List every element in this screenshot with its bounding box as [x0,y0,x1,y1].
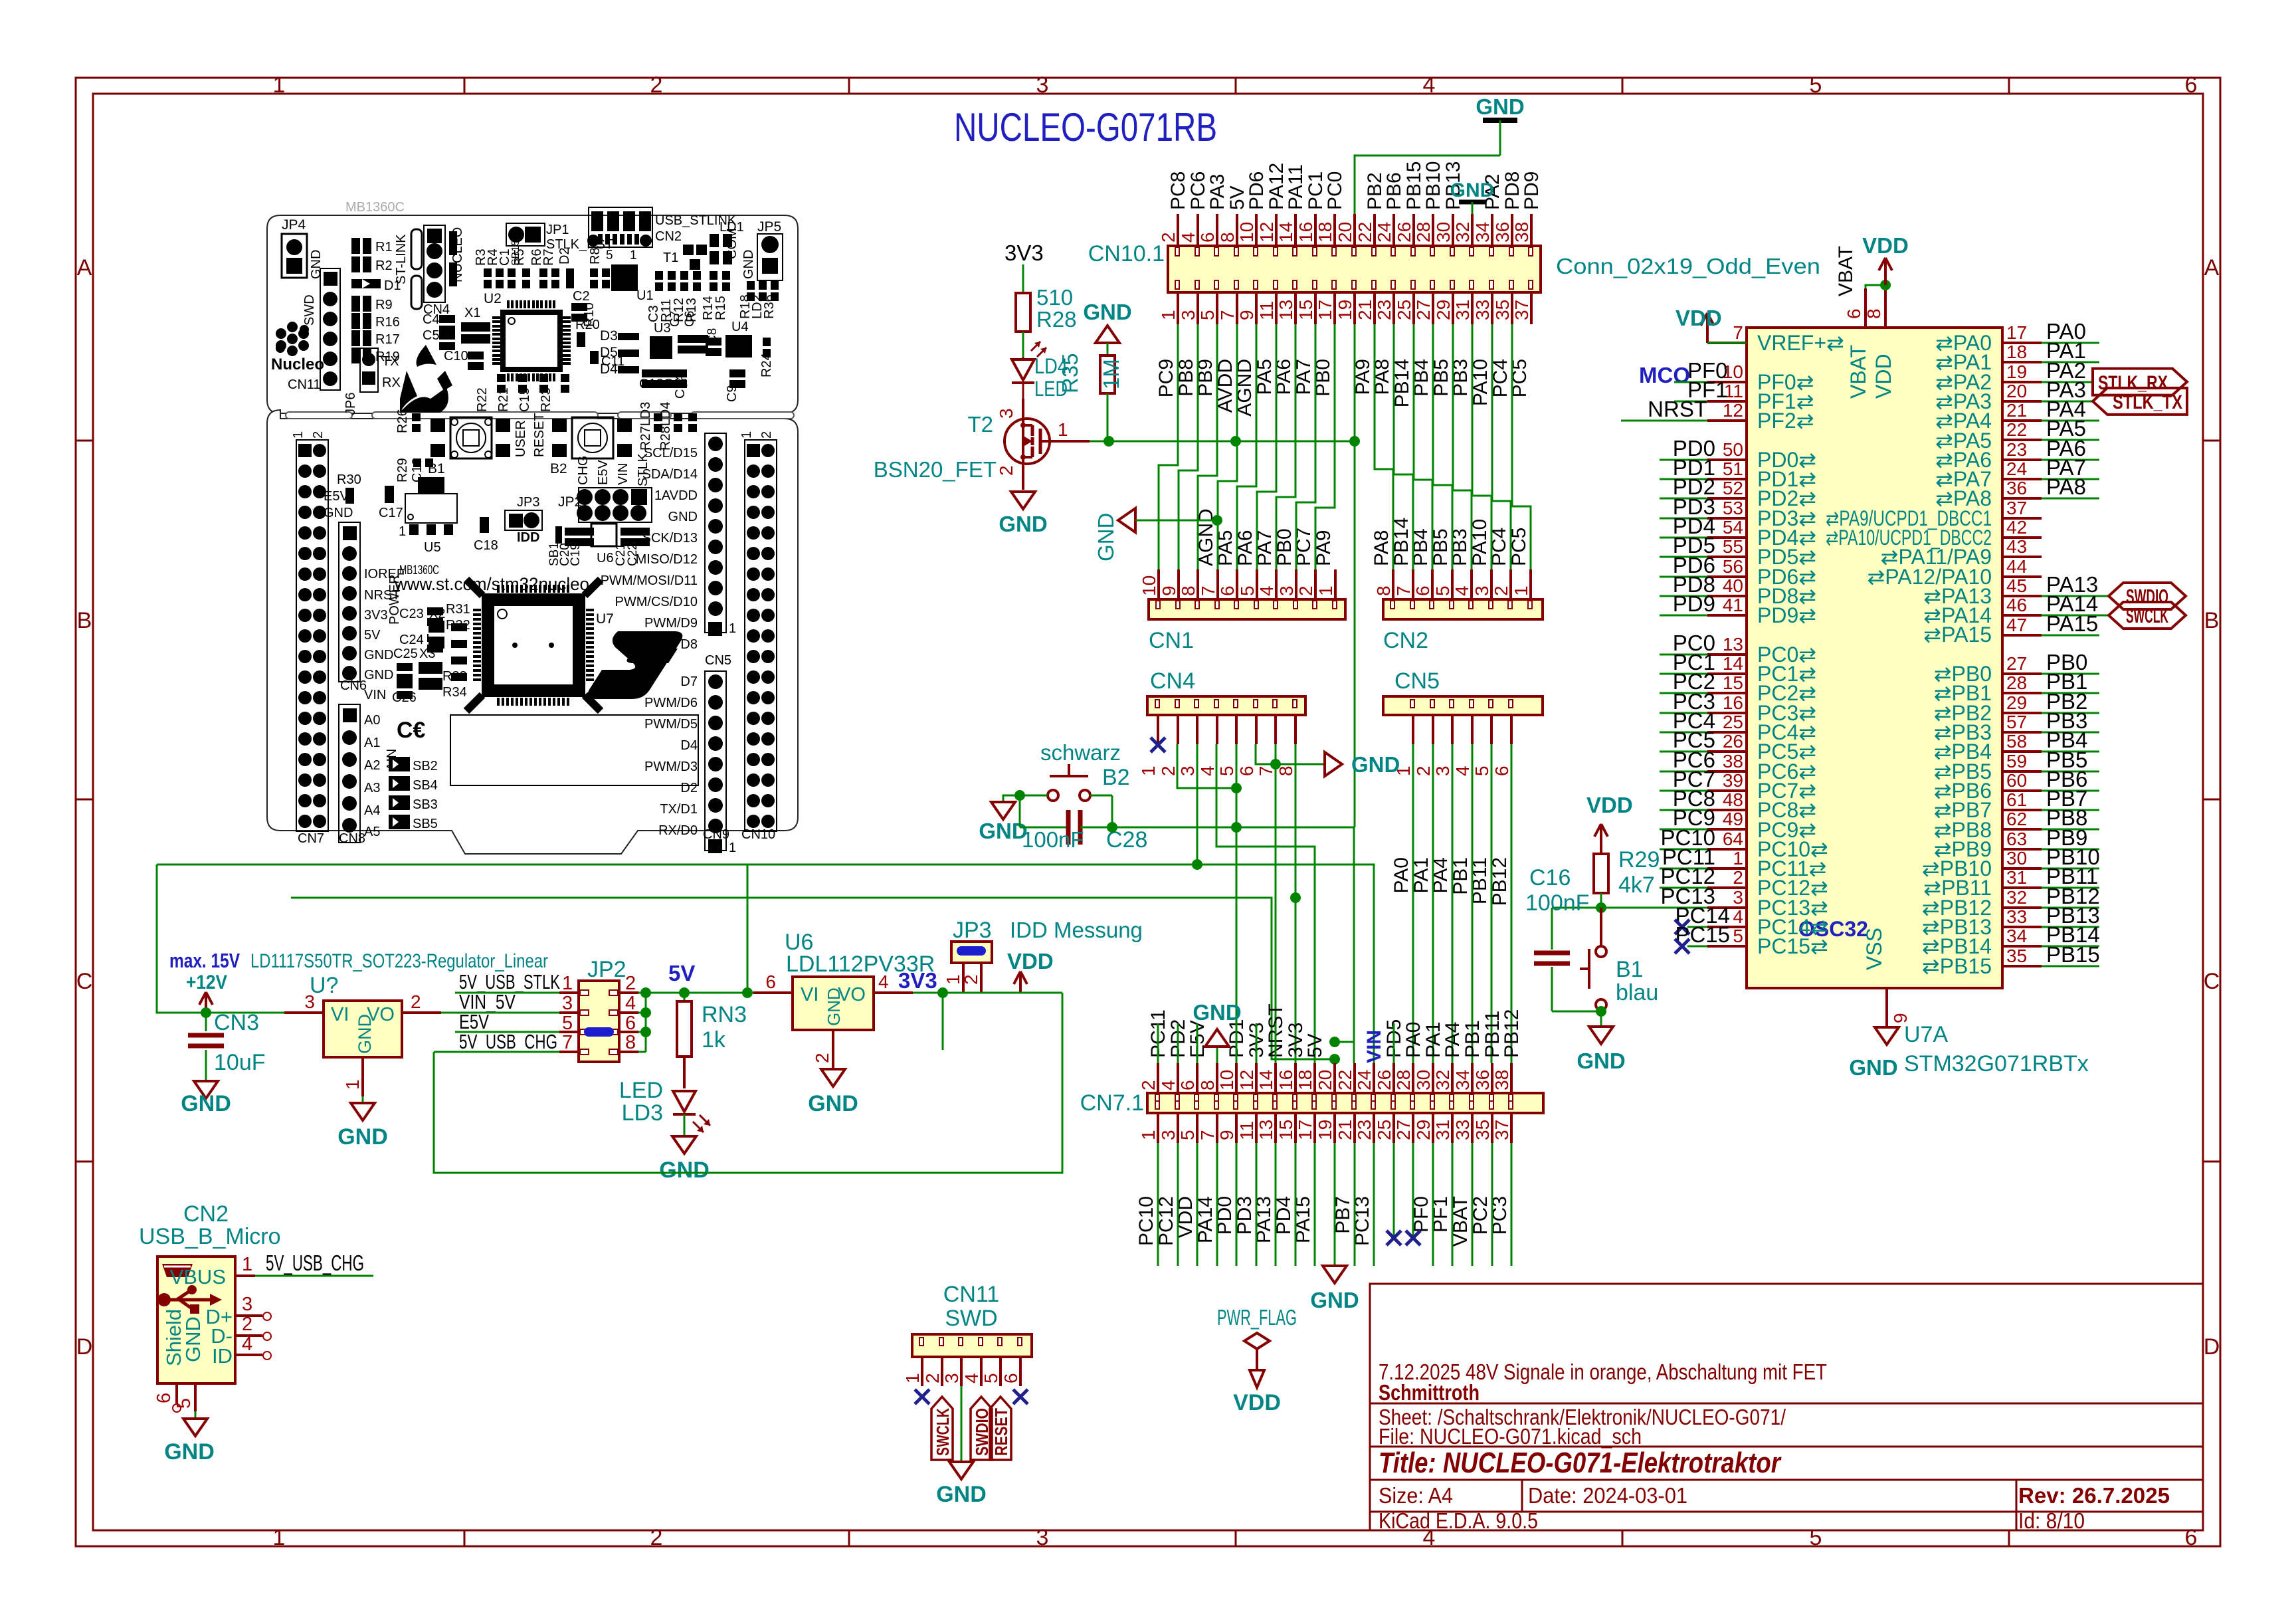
svg-text:20: 20 [1335,222,1355,243]
svg-text:6: 6 [1412,585,1433,596]
svg-text:8: 8 [1197,1080,1218,1090]
svg-text:JP4: JP4 [282,217,306,233]
svg-text:VBAT: VBAT [1835,246,1857,296]
svg-text:CN10: CN10 [741,827,775,842]
svg-text:A3: A3 [364,781,380,795]
svg-text:4: 4 [1452,585,1472,596]
svg-text:2: 2 [922,1373,943,1383]
svg-text:+12V: +12V [186,971,227,993]
svg-text:3: 3 [304,991,315,1012]
svg-text:RESET: RESET [991,1408,1011,1456]
svg-text:PF2⇄: PF2⇄ [1757,409,1814,433]
svg-text:29: 29 [1413,1120,1434,1140]
svg-text:C: C [2204,969,2220,994]
svg-text:12: 12 [1723,400,1743,421]
svg-text:6: 6 [1844,308,1864,319]
svg-text:X3: X3 [419,647,435,661]
svg-text:12: 12 [1236,1070,1257,1090]
svg-text:4: 4 [242,1334,252,1355]
svg-text:3V3: 3V3 [898,968,937,993]
svg-text:48: 48 [1723,789,1743,810]
svg-text:40: 40 [1723,575,1743,596]
svg-text:510: 510 [1036,285,1073,310]
svg-text:R27LD3: R27LD3 [638,402,653,451]
svg-text:3: 3 [1036,1525,1049,1550]
svg-text:COM: COM [725,228,739,259]
svg-text:53: 53 [1723,498,1743,518]
svg-text:R1: R1 [375,240,393,254]
svg-text:32: 32 [1452,222,1473,243]
svg-text:SB3: SB3 [413,797,438,812]
svg-text:6: 6 [1491,765,1512,776]
svg-text:11: 11 [1256,301,1277,320]
svg-text:PA0: PA0 [1390,857,1412,893]
svg-text:SWD: SWD [302,294,317,326]
svg-text:STLK_TX: STLK_TX [2113,391,2182,413]
svg-text:2: 2 [650,72,663,98]
svg-text:35: 35 [1492,300,1513,320]
svg-text:GND: GND [999,512,1047,536]
svg-text:4: 4 [1452,765,1473,776]
svg-text:SB15: SB15 [510,240,522,266]
svg-text:28: 28 [1413,222,1434,243]
svg-text:C26: C26 [392,690,417,705]
svg-text:Date: 2024-03-01: Date: 2024-03-01 [1528,1483,1687,1508]
svg-text:R29: R29 [395,458,410,482]
svg-text:U5: U5 [424,540,441,555]
svg-text:43: 43 [2006,536,2027,557]
svg-text:GND: GND [1083,300,1131,324]
svg-text:27: 27 [1413,300,1434,320]
svg-text:35: 35 [1472,1120,1493,1140]
svg-text:1: 1 [1315,585,1336,596]
svg-text:3: 3 [1178,310,1198,320]
svg-text:7: 7 [1217,310,1238,320]
svg-text:62: 62 [2006,809,2027,829]
svg-text:9: 9 [1236,310,1257,320]
svg-text:JP2: JP2 [587,957,626,982]
svg-text:Nucleo: Nucleo [271,355,324,373]
svg-text:VDD: VDD [1586,793,1633,817]
svg-text:16: 16 [1723,692,1743,713]
svg-text:GND: GND [741,250,756,279]
svg-text:U6: U6 [597,551,614,565]
svg-text:A1: A1 [364,736,380,750]
svg-text:BSN20_FET: BSN20_FET [874,457,997,482]
svg-text:2: 2 [812,1053,832,1063]
svg-text:CN1: CN1 [1149,628,1194,653]
svg-text:26: 26 [1723,731,1743,752]
svg-text:STLK_RST: STLK_RST [546,237,613,252]
svg-text:D: D [76,1334,93,1360]
svg-text:25: 25 [1374,1120,1394,1140]
svg-text:5V: 5V [668,961,695,985]
svg-text:LED: LED [619,1078,663,1103]
svg-text:21: 21 [1335,1120,1355,1140]
svg-text:35: 35 [2006,946,2027,966]
svg-text:SWCLK: SWCLK [933,1408,953,1456]
svg-text:PWM/MOSI/D11: PWM/MOSI/D11 [601,573,698,588]
svg-text:58: 58 [2006,731,2027,752]
svg-text:Schmittroth: Schmittroth [1379,1380,1480,1405]
svg-text:E5V: E5V [324,489,349,504]
svg-text:3V3: 3V3 [1004,241,1044,265]
svg-text:6: 6 [1001,1373,1021,1383]
svg-text:R31: R31 [446,602,470,617]
svg-text:5V_USB_CHG: 5V_USB_CHG [459,1030,557,1053]
svg-text:PC15⇄: PC15⇄ [1757,934,1828,958]
svg-text:A4: A4 [364,803,380,818]
svg-text:R34: R34 [442,685,467,700]
svg-text:max. 15V: max. 15V [169,949,240,972]
svg-text:GND: GND [364,648,393,662]
svg-text:24: 24 [1354,1070,1375,1090]
svg-text:2: 2 [1138,1080,1159,1090]
svg-text:1: 1 [739,431,754,439]
svg-text:GND: GND [936,1482,987,1507]
svg-text:9: 9 [1890,1013,1911,1023]
svg-text:R30: R30 [337,472,361,487]
svg-text:19: 19 [1335,300,1355,320]
svg-text:R15: R15 [714,296,728,320]
svg-text:8: 8 [625,1032,636,1053]
svg-text:SWD: SWD [945,1306,997,1331]
svg-text:18: 18 [1295,1070,1315,1090]
svg-text:R33: R33 [442,669,467,684]
svg-text:17: 17 [2006,322,2027,343]
svg-text:PB15: PB15 [2046,942,2100,967]
svg-text:USB_B_Micro: USB_B_Micro [139,1224,281,1249]
svg-text:PC8: PC8 [1167,171,1189,210]
svg-text:GND: GND [1450,179,1495,201]
svg-text:GND: GND [337,1124,388,1150]
svg-text:5: 5 [981,1373,1001,1383]
svg-text:1: 1 [242,1254,252,1275]
svg-text:blau: blau [1616,980,1658,1005]
svg-text:57: 57 [2006,712,2027,732]
svg-text:5: 5 [1197,310,1218,320]
svg-text:32: 32 [1432,1070,1453,1090]
svg-text:28: 28 [2006,672,2027,693]
svg-text:59: 59 [2006,751,2027,771]
svg-text:GND: GND [1577,1049,1625,1073]
svg-text:PWM/D5: PWM/D5 [644,717,698,732]
svg-text:JP1: JP1 [546,223,569,237]
svg-text:3: 3 [1177,765,1198,776]
svg-text:GND: GND [1193,1000,1241,1025]
svg-text:2: 2 [1413,765,1434,776]
svg-text:C5: C5 [423,328,440,343]
svg-text:D4: D4 [680,738,698,753]
svg-text:56: 56 [1723,556,1743,577]
svg-text:C23: C23 [399,607,424,621]
svg-text:R26: R26 [395,409,410,433]
svg-text:15: 15 [1295,300,1316,320]
svg-text:GND: GND [659,1158,710,1183]
svg-text:36: 36 [1472,1070,1493,1090]
svg-text:63: 63 [2006,829,2027,849]
svg-text:1: 1 [399,524,406,539]
svg-text:50: 50 [1723,439,1743,460]
svg-text:Title: NUCLEO-G071-Elektrotrak: Title: NUCLEO-G071-Elektrotraktor [1379,1447,1782,1479]
svg-text:C4: C4 [423,312,440,327]
svg-text:1: 1 [273,72,286,98]
svg-text:4: 4 [1178,232,1198,243]
svg-text:STM32G071RBTx: STM32G071RBTx [1904,1051,2089,1076]
svg-text:CN4: CN4 [1150,668,1195,694]
svg-text:AVDD: AVDD [662,488,698,503]
svg-text:38: 38 [1491,1070,1512,1090]
svg-text:3: 3 [1472,585,1492,596]
svg-text:T1: T1 [663,251,678,265]
svg-text:SB5: SB5 [413,817,438,831]
svg-text:PA0: PA0 [1402,1022,1424,1058]
svg-text:4: 4 [1256,585,1277,596]
svg-text:File: NUCLEO-G071.kicad_sch: File: NUCLEO-G071.kicad_sch [1379,1424,1642,1449]
svg-text:7: 7 [562,1032,573,1053]
svg-text:17: 17 [1315,300,1335,320]
svg-text:MCO: MCO [1639,363,1690,387]
svg-text:PWM/D3: PWM/D3 [644,760,698,774]
svg-text:1: 1 [729,621,736,636]
svg-text:37: 37 [1511,300,1532,320]
svg-text:2: 2 [1733,867,1743,888]
svg-text:CN6: CN6 [340,678,367,693]
svg-text:X2: X2 [429,607,445,621]
svg-text:RX: RX [382,375,401,390]
svg-text:2: 2 [311,431,326,439]
svg-text:B2: B2 [1102,765,1130,790]
svg-text:6: 6 [625,1013,636,1034]
svg-text:PA3: PA3 [1206,174,1228,210]
svg-text:13: 13 [1276,300,1296,320]
svg-text:37: 37 [1491,1120,1512,1140]
svg-text:4: 4 [1158,1080,1179,1090]
svg-text:C24: C24 [399,633,424,647]
svg-text:B1: B1 [1616,957,1644,982]
svg-text:TX/D1: TX/D1 [660,802,698,817]
svg-text:PWR_FLAG: PWR_FLAG [1217,1305,1297,1330]
svg-text:Id: 8/10: Id: 8/10 [2018,1508,2085,1533]
svg-text:C9: C9 [725,385,739,402]
svg-text:27: 27 [2006,653,2027,674]
svg-text:R29: R29 [1618,847,1660,872]
svg-text:GND: GND [1476,94,1524,119]
svg-text:34: 34 [1472,222,1493,243]
svg-text:24: 24 [2006,458,2027,479]
svg-text:1: 1 [1511,585,1531,596]
svg-text:5: 5 [1216,765,1237,776]
svg-text:VDD: VDD [1675,306,1722,330]
svg-text:28: 28 [1393,1070,1414,1090]
svg-text:7: 7 [1198,585,1218,596]
svg-text:RESET: RESET [532,413,547,457]
svg-text:TX: TX [382,354,399,369]
svg-text:20: 20 [1315,1070,1335,1090]
svg-text:5: 5 [1733,926,1743,946]
svg-text:NRST: NRST [1648,397,1707,421]
svg-text:PA15: PA15 [2046,611,2098,636]
svg-text:PWM/D9: PWM/D9 [644,616,698,631]
svg-text:5V: 5V [1304,1033,1326,1058]
svg-text:4: 4 [961,1373,982,1383]
svg-text:29: 29 [2006,692,2027,713]
svg-text:SDA/D14: SDA/D14 [642,467,698,482]
svg-text:4: 4 [878,971,889,992]
svg-text:6: 6 [2185,72,2198,98]
svg-text:31: 31 [1432,1120,1453,1140]
svg-text:2: 2 [1491,585,1511,596]
svg-text:GND: GND [824,987,844,1026]
svg-text:1: 1 [729,841,736,855]
svg-text:5V_USB_CHG: 5V_USB_CHG [266,1251,364,1275]
svg-text:GND: GND [364,668,393,682]
svg-text:MB1360C: MB1360C [345,200,405,215]
svg-text:C€: C€ [397,718,426,743]
svg-text:Conn_02x19_Odd_Even: Conn_02x19_Odd_Even [1556,254,1820,278]
svg-text:6: 6 [1217,585,1238,596]
svg-text:PD9⇄: PD9⇄ [1757,603,1816,627]
svg-text:GND: GND [1351,752,1400,777]
svg-text:D3: D3 [600,328,618,344]
svg-text:14: 14 [1723,653,1743,674]
svg-text:VIN: VIN [1363,1030,1385,1063]
svg-text:21: 21 [2006,400,2027,421]
svg-text:2: 2 [411,991,421,1012]
svg-text:46: 46 [2006,595,2027,615]
svg-text:1M: 1M [1099,359,1123,389]
svg-text:VDD: VDD [1233,1390,1281,1415]
svg-text:R22: R22 [475,387,490,412]
svg-text:3: 3 [996,408,1016,419]
svg-text:CN2: CN2 [655,229,682,244]
svg-text:19: 19 [1315,1120,1335,1140]
svg-text:1: 1 [562,973,573,994]
svg-text:VSS: VSS [1862,928,1886,970]
svg-text:39: 39 [1723,770,1743,791]
svg-text:B: B [77,608,92,633]
svg-text:R35: R35 [1058,353,1082,393]
svg-text:3: 3 [1036,72,1049,98]
svg-text:1: 1 [902,1373,923,1383]
svg-text:R20: R20 [575,318,600,332]
svg-text:PD6: PD6 [1246,171,1268,210]
svg-text:NUCLEO: NUCLEO [450,227,465,282]
svg-text:PA4: PA4 [1442,1022,1464,1058]
svg-text:⇄PB15: ⇄PB15 [1922,954,1992,978]
svg-text:CHG: CHG [576,456,591,485]
svg-text:3: 3 [941,1373,962,1383]
svg-text:3: 3 [1276,585,1297,596]
svg-text:17: 17 [1295,1120,1315,1140]
svg-text:PB6: PB6 [1383,172,1405,210]
svg-text:5: 5 [1432,585,1453,596]
svg-text:A: A [2204,255,2220,280]
svg-text:20: 20 [2006,381,2027,401]
svg-text:14: 14 [1256,1070,1276,1090]
svg-text:5: 5 [562,1013,573,1034]
svg-text:5: 5 [1177,1130,1198,1140]
svg-text:15: 15 [1276,1120,1296,1140]
svg-text:2: 2 [1158,232,1179,243]
svg-text:36: 36 [2006,478,2027,498]
svg-text:5: 5 [1810,1525,1822,1550]
svg-text:VREF+⇄: VREF+⇄ [1757,331,1844,355]
svg-text:26: 26 [1374,1070,1394,1090]
svg-text:VDD: VDD [1862,233,1909,258]
svg-text:22: 22 [2006,419,2027,440]
svg-text:LD1117S50TR_SOT223-Regulator_L: LD1117S50TR_SOT223-Regulator_Linear [250,950,548,972]
svg-text:D5: D5 [600,345,618,360]
svg-text:36: 36 [1492,222,1513,243]
svg-text:NUCLEO-G071RB: NUCLEO-G071RB [954,105,1217,150]
svg-text:C14: C14 [673,374,688,399]
svg-text:GND: GND [1094,513,1118,561]
svg-text:5: 5 [1472,765,1492,776]
svg-text:33: 33 [1472,300,1493,320]
svg-text:U7A: U7A [1904,1022,1948,1047]
svg-text:ST-LINK: ST-LINK [394,234,409,284]
svg-text:Rev: 26.7.2025: Rev: 26.7.2025 [2018,1483,2170,1508]
svg-text:10: 10 [1139,575,1159,596]
svg-text:VBAT: VBAT [1846,345,1870,399]
svg-text:42: 42 [2006,517,2027,538]
svg-text:C25: C25 [393,647,418,661]
svg-text:KiCad E.D.A. 9.0.5: KiCad E.D.A. 9.0.5 [1379,1508,1538,1533]
svg-text:5V: 5V [364,628,381,643]
svg-text:23: 23 [1374,300,1394,320]
svg-text:GND: GND [309,250,324,279]
svg-text:GND: GND [1310,1288,1359,1312]
svg-text:CN9: CN9 [703,827,729,842]
svg-text:6: 6 [2185,1525,2198,1550]
svg-text:B2: B2 [550,461,567,476]
svg-text:1: 1 [291,431,306,439]
svg-text:1: 1 [1733,848,1743,868]
svg-text:VDD: VDD [1007,949,1054,973]
svg-text:CN7: CN7 [298,831,324,846]
svg-text:32: 32 [2006,887,2027,908]
svg-text:2: 2 [996,465,1016,476]
svg-text:D8: D8 [680,637,698,652]
svg-text:GND: GND [808,1091,858,1116]
svg-text:CN10.1: CN10.1 [1088,241,1165,266]
svg-text:3: 3 [1432,765,1453,776]
svg-text:D2: D2 [680,781,698,795]
svg-text:RN3: RN3 [702,1002,747,1027]
svg-text:8: 8 [1217,232,1238,243]
svg-text:4k7: 4k7 [1618,872,1655,898]
svg-text:2: 2 [961,974,981,985]
svg-text:19: 19 [2006,361,2027,382]
svg-text:11: 11 [1236,1121,1257,1140]
svg-text:9: 9 [1159,585,1179,596]
svg-text:B: B [2204,608,2220,633]
svg-text:38: 38 [1511,222,1532,243]
svg-text:C17: C17 [379,506,403,520]
svg-text:9: 9 [1216,1130,1237,1140]
svg-text:PB12: PB12 [1501,1009,1523,1058]
svg-text:2: 2 [759,431,774,439]
svg-text:R21: R21 [496,387,511,412]
svg-text:C10: C10 [444,349,468,363]
svg-text:PC9: PC9 [1155,359,1177,397]
svg-text:VI: VI [801,984,818,1005]
svg-text:R17: R17 [375,332,400,347]
svg-text:CN7.1: CN7.1 [1080,1090,1144,1116]
svg-text:CN8: CN8 [339,831,365,846]
svg-text:30: 30 [1433,222,1454,243]
